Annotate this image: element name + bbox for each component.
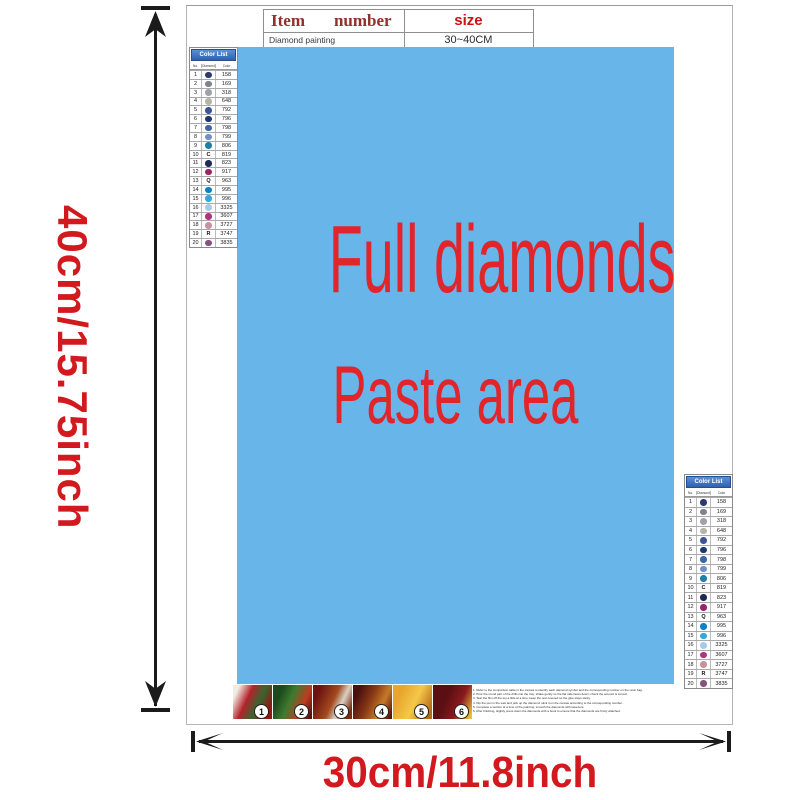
color-row-number: 17 [685,652,696,658]
color-list-row: 16 3325 [685,640,732,650]
diamond-symbol-cell [696,603,711,612]
step-photo: 2 [273,685,312,719]
dmc-code: 917 [216,169,237,175]
color-list-left: Color List No. Diamond Color 1 158 2 [189,47,238,248]
color-row-number: 2 [190,81,201,87]
item-info-table: Item number size Diamond painting 30~40C… [263,9,534,49]
color-list-row: 6 796 [190,114,237,123]
diamond-symbol-icon [700,604,707,611]
color-list-row: 17 3607 [190,212,237,221]
diamond-symbol-icon [205,240,212,247]
color-row-number: 4 [685,528,696,534]
diamond-symbol-cell [696,555,711,564]
color-row-number: 10 [685,585,696,591]
color-list-row: 16 3325 [190,203,237,212]
diamond-symbol-icon [700,556,707,563]
color-list-column-headers: No. Diamond Color [685,489,732,497]
diamond-symbol-cell: Q [696,613,711,622]
color-list-row: 12 917 [190,167,237,176]
color-row-number: 16 [190,205,201,211]
diamond-symbol-cell [201,133,216,141]
diamond-symbol-cell [696,565,711,574]
col-color-header: Color [216,64,237,68]
color-list-row: 13 Q 963 [685,612,732,622]
paste-area-title-line2: Paste area [320,349,591,443]
diamond-symbol-cell: C [696,584,711,593]
dmc-code: 796 [711,547,732,553]
color-list-row: 14 995 [685,621,732,631]
dmc-code: 996 [711,633,732,639]
dmc-code: 3747 [216,231,237,237]
step-number-badge: 2 [294,704,309,719]
color-row-number: 5 [190,107,201,113]
dmc-code: 823 [216,160,237,166]
dmc-code: 995 [216,187,237,193]
diamond-symbol-icon: Q [206,178,210,184]
diamond-symbol-icon [205,134,212,141]
step-photo: 3 [313,685,352,719]
diamond-symbol-icon [700,652,707,659]
step-number-badge: 6 [454,704,469,719]
diamond-symbol-cell: Q [201,177,216,185]
color-list-row: 9 806 [685,573,732,583]
color-list-row: 19 R 3747 [190,229,237,238]
product-image: { "colors": { "paste_blue": "#67b5e9", "… [0,0,800,800]
color-list-row: 4 648 [685,526,732,536]
dmc-code: 3835 [216,240,237,246]
height-arrow-top-cap [141,6,170,10]
color-row-number: 8 [190,134,201,140]
color-list-row: 11 823 [685,592,732,602]
diamond-symbol-cell [696,679,711,688]
color-list-row: 5 792 [685,535,732,545]
color-list-row: 7 798 [685,554,732,564]
step-number-badge: 5 [414,704,429,719]
diamond-symbol-icon [700,575,707,582]
color-row-number: 19 [685,671,696,677]
color-row-number: 20 [685,681,696,687]
color-list-row: 7 798 [190,123,237,132]
step-number-badge: 1 [254,704,269,719]
diamond-symbol-cell [201,124,216,132]
dmc-code: 806 [711,576,732,582]
width-arrow-left-cap [191,731,195,752]
height-arrow-bottom-cap [141,708,170,712]
diamond-symbol-icon [700,509,707,516]
dmc-code: 819 [216,152,237,158]
diamond-symbol-cell [696,632,711,641]
color-list-row: 2 169 [190,79,237,88]
color-row-number: 3 [190,90,201,96]
color-row-number: 13 [190,178,201,184]
dmc-code: 318 [711,518,732,524]
color-list-row: 13 Q 963 [190,176,237,185]
width-dimension-label: 30cm/11.8inch [313,748,607,798]
color-row-number: 8 [685,566,696,572]
diamond-symbol-icon [205,213,212,220]
diamond-symbol-cell [201,186,216,194]
item-header: Item [271,11,305,31]
col-color-header: Color [711,491,732,495]
col-diamond-header: Diamond [696,491,711,495]
step-photo: 4 [353,685,392,719]
diamond-symbol-cell: C [201,151,216,159]
color-row-number: 1 [190,72,201,78]
width-arrow-right-cap [727,731,731,752]
diamond-symbol-icon [205,107,212,114]
color-list-row: 19 R 3747 [685,669,732,679]
diamond-symbol-cell [201,204,216,212]
color-list-row: 3 318 [190,88,237,97]
dmc-code: 648 [711,528,732,534]
dmc-code: 798 [711,557,732,563]
dmc-code: 3747 [711,671,732,677]
diamond-symbol-icon: C [207,152,211,158]
color-row-number: 17 [190,213,201,219]
diamond-symbol-icon: R [702,671,706,677]
color-row-number: 14 [190,187,201,193]
color-row-number: 12 [190,169,201,175]
diamond-symbol-icon [700,537,707,544]
step-photo: 5 [393,685,432,719]
color-row-number: 6 [190,116,201,122]
color-list-right: Color List No. Diamond Color 1 158 2 [684,474,733,689]
dmc-code: 648 [216,98,237,104]
color-list-title: Color List [686,476,731,488]
diamond-symbol-cell [696,498,711,507]
dmc-code: 917 [711,604,732,610]
color-row-number: 6 [685,547,696,553]
diamond-symbol-cell [696,622,711,631]
color-list-row: 18 3727 [685,659,732,669]
step-number-badge: 4 [374,704,389,719]
diamond-symbol-icon [205,72,212,79]
diamond-symbol-cell [696,593,711,602]
step-photo: 6 [433,685,472,719]
color-list-title: Color List [191,49,236,61]
diamond-symbol-cell [201,71,216,79]
dmc-code: 169 [711,509,732,515]
diamond-symbol-cell [201,98,216,106]
dmc-code: 996 [216,196,237,202]
diamond-symbol-icon [700,680,707,687]
diamond-symbol-icon [205,89,212,96]
diamond-symbol-cell [696,651,711,660]
diamond-symbol-icon [205,160,212,167]
color-row-number: 11 [685,595,696,601]
diamond-symbol-icon [205,169,212,176]
height-dimension-label: 40cm/15.75inch [34,200,110,535]
color-row-number: 9 [685,576,696,582]
color-row-number: 15 [190,196,201,202]
number-header: number [334,11,392,31]
color-row-number: 7 [190,125,201,131]
color-list-row: 10 C 819 [685,583,732,593]
step-photo: 1 [233,685,272,719]
diamond-symbol-icon [205,98,212,105]
diamond-symbol-icon [205,222,212,229]
size-value: 30~40CM [404,34,533,46]
color-row-number: 19 [190,231,201,237]
diamond-symbol-cell: R [201,230,216,238]
col-no-header: No. [685,491,696,495]
diamond-symbol-cell: R [696,670,711,679]
diamond-symbol-icon [700,661,707,668]
color-row-number: 10 [190,152,201,158]
color-list-row: 11 823 [190,158,237,167]
dmc-code: 792 [711,537,732,543]
diamond-symbol-cell [696,660,711,669]
instruction-text-block: 1. Refer to the comparison table in the … [473,688,681,718]
dmc-code: 169 [216,81,237,87]
diamond-symbol-icon [205,195,212,202]
diamond-symbol-icon [700,594,707,601]
diamond-symbol-cell [201,195,216,203]
color-list-rows: 1 158 2 169 3 [685,497,732,688]
diamond-symbol-cell [201,142,216,150]
diamond-symbol-cell [201,213,216,221]
diamond-symbol-cell [696,574,711,583]
diamond-symbol-icon: C [702,585,706,591]
color-list-row: 9 806 [190,141,237,150]
dmc-code: 318 [216,90,237,96]
color-list-column-headers: No. Diamond Color [190,62,237,70]
diamond-symbol-cell [201,106,216,114]
diamond-symbol-icon [700,518,707,525]
diamond-symbol-cell [696,641,711,650]
color-list-row: 8 799 [685,564,732,574]
diamond-symbol-icon [205,187,212,194]
color-list-row: 5 792 [190,105,237,114]
diamond-symbol-icon [205,142,212,149]
paste-area: Full diamonds Paste area [237,47,674,684]
color-list-row: 3 318 [685,516,732,526]
height-arrow-line [154,14,157,706]
dmc-code: 3727 [216,222,237,228]
dmc-code: 158 [711,499,732,505]
diamond-symbol-cell [201,221,216,229]
diamond-symbol-icon [700,547,707,554]
diamond-symbol-icon [700,528,707,535]
color-row-number: 16 [685,642,696,648]
color-list-row: 8 799 [190,132,237,141]
dmc-code: 3835 [711,681,732,687]
dmc-code: 806 [216,143,237,149]
color-row-number: 18 [685,662,696,668]
diamond-symbol-cell [201,239,216,247]
diamond-symbol-icon [700,642,707,649]
canvas-sheet: Item number size Diamond painting 30~40C… [186,5,733,725]
diamond-symbol-cell [696,508,711,517]
color-row-number: 11 [190,160,201,166]
diamond-symbol-icon [205,125,212,132]
color-list-row: 14 995 [190,185,237,194]
instruction-line: 6. After finishing, slightly press down … [473,709,681,713]
color-row-number: 7 [685,557,696,563]
color-row-number: 5 [685,537,696,543]
color-row-number: 1 [685,499,696,505]
color-list-row: 4 648 [190,97,237,106]
color-row-number: 20 [190,240,201,246]
dmc-code: 823 [711,595,732,601]
col-diamond-header: Diamond [201,64,216,68]
product-name: Diamond painting [269,35,335,45]
size-header: size [404,12,533,29]
color-list-row: 1 158 [190,70,237,79]
color-row-number: 4 [190,98,201,104]
color-row-number: 13 [685,614,696,620]
dmc-code: 158 [216,72,237,78]
paste-area-title-line1: Full diamonds [329,205,582,315]
diamond-symbol-icon [700,623,707,630]
diamond-symbol-icon [700,499,707,506]
diamond-symbol-cell [201,168,216,176]
diamond-symbol-cell [201,80,216,88]
diamond-symbol-cell [696,527,711,536]
color-row-number: 12 [685,604,696,610]
dmc-code: 799 [711,566,732,572]
color-list-row: 17 3607 [685,650,732,660]
dmc-code: 963 [216,178,237,184]
color-list-row: 15 996 [685,631,732,641]
diamond-symbol-cell [201,159,216,167]
step-number-badge: 3 [334,704,349,719]
color-list-row: 20 3835 [190,238,237,247]
color-list-row: 18 3727 [190,220,237,229]
diamond-symbol-cell [696,546,711,555]
diamond-symbol-icon: Q [701,614,705,620]
diamond-symbol-cell [201,89,216,97]
color-row-number: 9 [190,143,201,149]
color-row-number: 14 [685,623,696,629]
diamond-symbol-cell [201,115,216,123]
dmc-code: 3727 [711,662,732,668]
color-row-number: 18 [190,222,201,228]
dmc-code: 796 [216,116,237,122]
color-list-row: 15 996 [190,194,237,203]
color-list-row: 1 158 [685,497,732,507]
width-arrow-line [199,740,723,743]
diamond-symbol-cell [696,536,711,545]
color-row-number: 2 [685,509,696,515]
dmc-code: 963 [711,614,732,620]
dmc-code: 3607 [216,213,237,219]
diamond-symbol-icon [700,633,707,640]
dmc-code: 3325 [216,205,237,211]
diamond-symbol-icon [700,566,707,573]
dmc-code: 799 [216,134,237,140]
color-list-row: 12 917 [685,602,732,612]
col-no-header: No. [190,64,201,68]
dmc-code: 798 [216,125,237,131]
dmc-code: 792 [216,107,237,113]
dmc-code: 819 [711,585,732,591]
dmc-code: 3325 [711,642,732,648]
diamond-symbol-icon: R [207,231,211,237]
diamond-symbol-cell [696,517,711,526]
color-list-row: 2 169 [685,507,732,517]
instruction-step-photos: 1 2 3 4 5 6 [233,685,472,719]
dmc-code: 3607 [711,652,732,658]
color-list-row: 20 3835 [685,678,732,688]
color-row-number: 3 [685,518,696,524]
diamond-symbol-icon [205,116,212,123]
color-row-number: 15 [685,633,696,639]
color-list-row: 6 796 [685,545,732,555]
color-list-rows: 1 158 2 169 3 [190,70,237,247]
dmc-code: 995 [711,623,732,629]
diamond-symbol-icon [205,81,212,88]
color-list-row: 10 C 819 [190,150,237,159]
diamond-symbol-icon [205,204,212,211]
